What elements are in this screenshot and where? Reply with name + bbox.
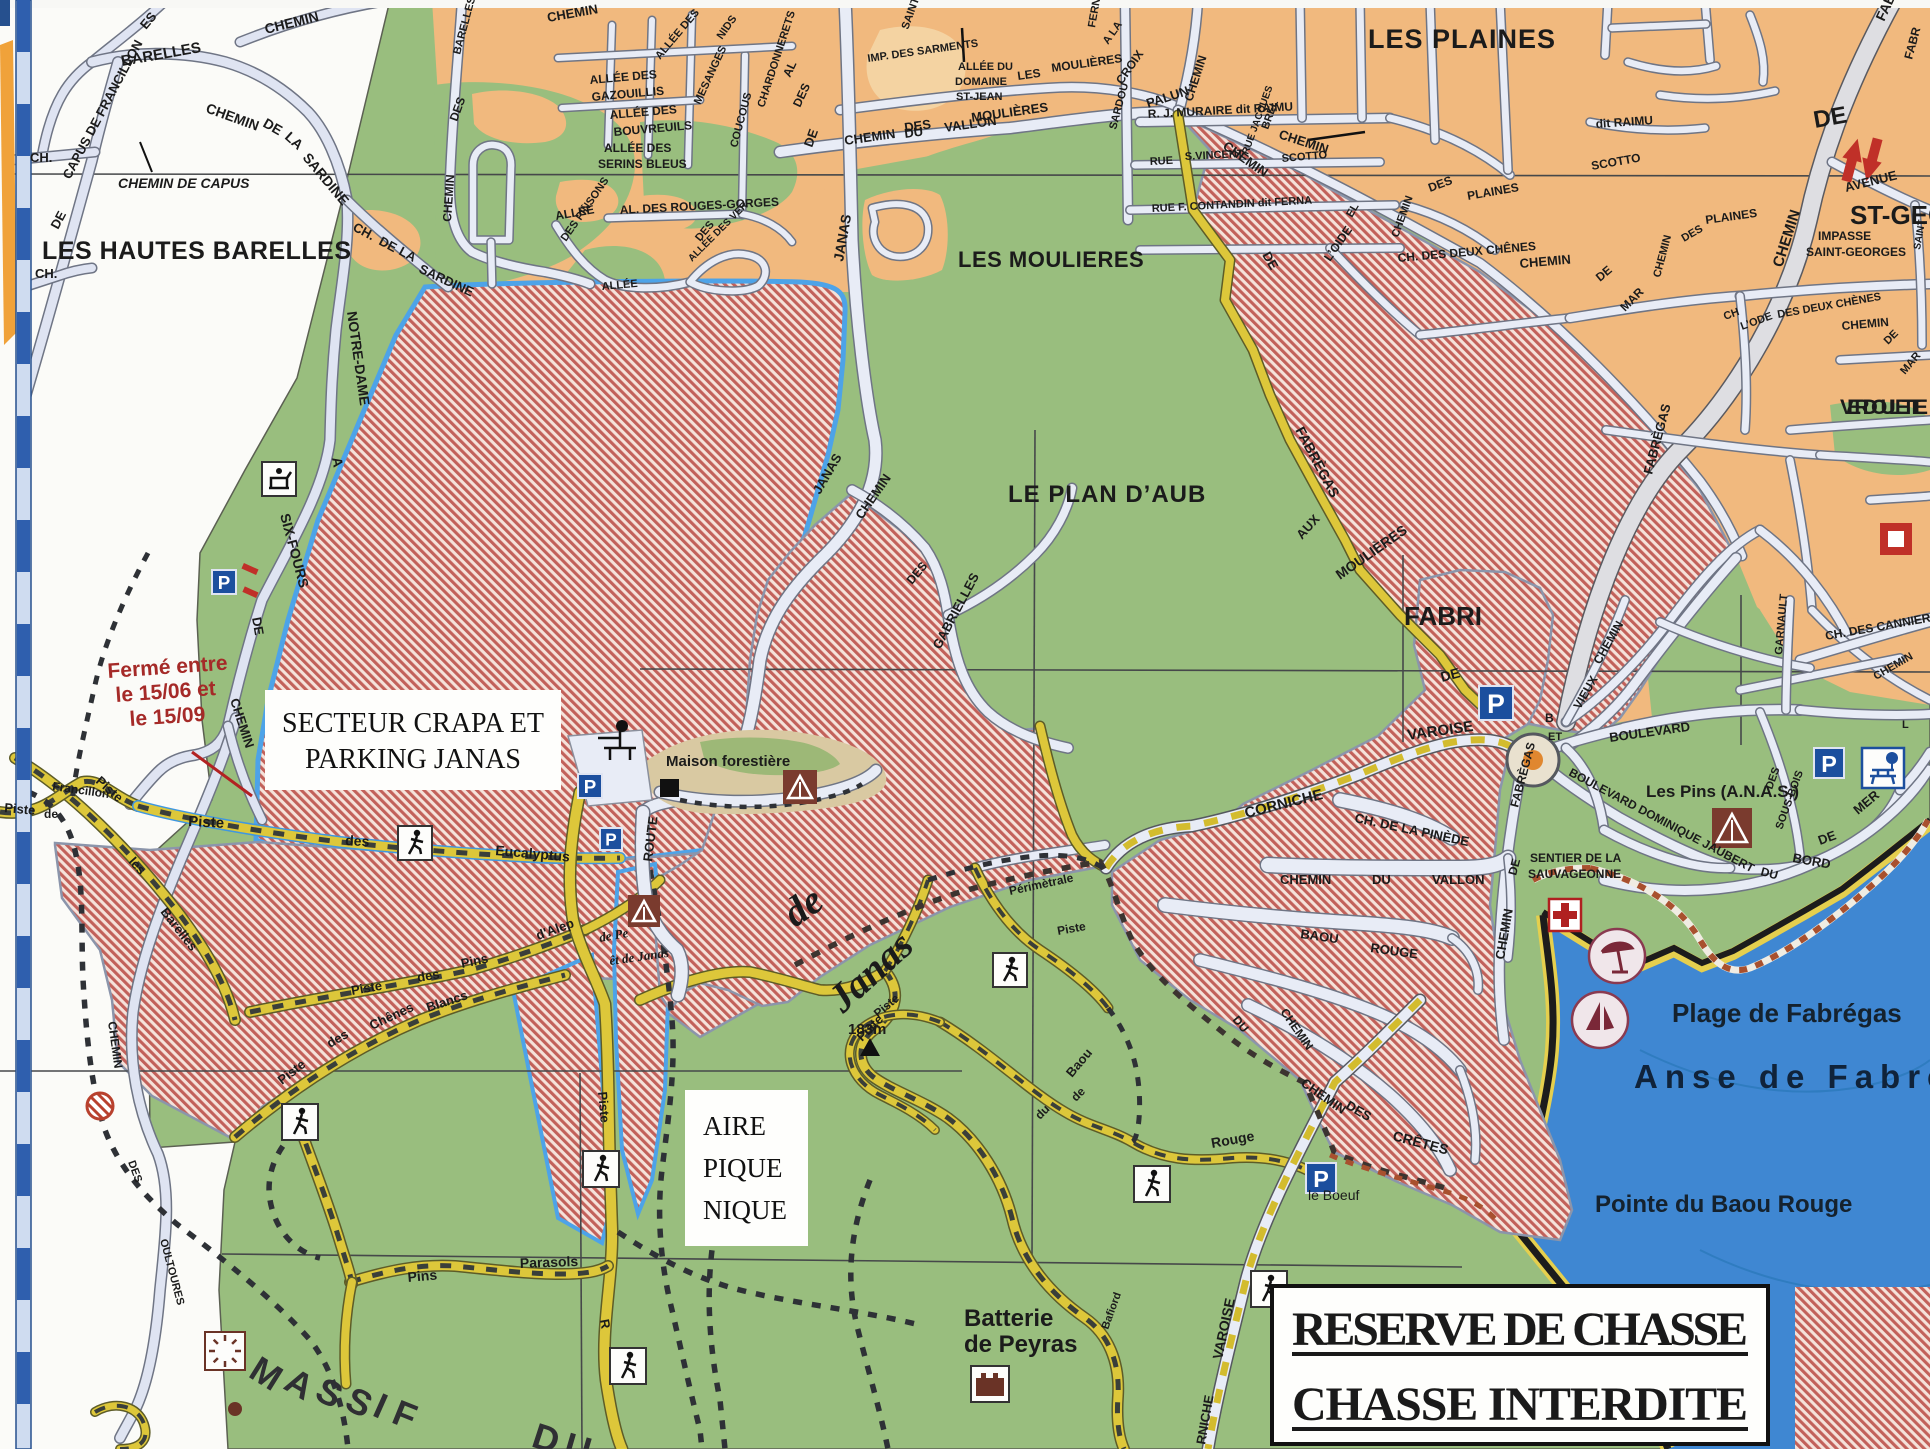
svg-text:ET: ET bbox=[1548, 731, 1562, 743]
svg-text:SAINT-GEORGES: SAINT-GEORGES bbox=[1806, 245, 1906, 259]
svg-text:ST-JEAN: ST-JEAN bbox=[956, 91, 1003, 103]
svg-text:Parasols: Parasols bbox=[520, 1253, 579, 1271]
svg-text:RESERVE DE CHASSE: RESERVE DE CHASSE bbox=[1292, 1303, 1748, 1356]
svg-text:DOMAINE: DOMAINE bbox=[955, 76, 1007, 88]
svg-text:ALLÉE DU: ALLÉE DU bbox=[958, 60, 1013, 73]
svg-text:SAUVAGEONNE: SAUVAGEONNE bbox=[1528, 867, 1621, 881]
svg-text:Maison forestière: Maison forestière bbox=[666, 753, 790, 770]
svg-text:CH.: CH. bbox=[30, 150, 52, 165]
svg-text:P: P bbox=[584, 776, 596, 797]
svg-text:DE: DE bbox=[249, 616, 267, 637]
svg-text:AIRE: AIRE bbox=[703, 1111, 766, 1141]
svg-text:NIQUE: NIQUE bbox=[703, 1195, 787, 1225]
svg-text:Pointe du Baou Rouge: Pointe du Baou Rouge bbox=[1595, 1191, 1852, 1218]
svg-text:LES HAUTES BARELLES: LES HAUTES BARELLES bbox=[42, 237, 352, 265]
svg-text:L: L bbox=[1902, 719, 1909, 731]
svg-text:CHEMIN: CHEMIN bbox=[1280, 872, 1331, 887]
svg-text:IMPASSE: IMPASSE bbox=[1818, 229, 1871, 243]
svg-text:LES PLAINES: LES PLAINES bbox=[1368, 24, 1556, 54]
svg-text:P: P bbox=[605, 830, 616, 850]
svg-text:LES MOULIERES: LES MOULIERES bbox=[958, 247, 1144, 272]
svg-text:Plage de Fabrégas: Plage de Fabrégas bbox=[1672, 998, 1902, 1028]
svg-text:le Boeuf: le Boeuf bbox=[1308, 1187, 1359, 1203]
svg-text:CHASSE INTERDITE: CHASSE INTERDITE bbox=[1292, 1378, 1748, 1431]
svg-text:de: de bbox=[44, 807, 58, 821]
svg-text:FABRI: FABRI bbox=[1404, 601, 1482, 631]
svg-text:CH.: CH. bbox=[35, 266, 57, 281]
svg-text:ALLÉE DES: ALLÉE DES bbox=[604, 140, 671, 155]
svg-text:de Peyras: de Peyras bbox=[964, 1331, 1077, 1358]
svg-text:Piste: Piste bbox=[4, 800, 36, 818]
svg-text:SERINS BLEUS: SERINS BLEUS bbox=[598, 157, 687, 171]
svg-text:PIQUE: PIQUE bbox=[703, 1153, 783, 1183]
svg-text:Pins: Pins bbox=[407, 1266, 438, 1285]
svg-text:CHEMIN DE CAPUS: CHEMIN DE CAPUS bbox=[118, 175, 250, 191]
svg-text:PARKING JANAS: PARKING JANAS bbox=[305, 744, 521, 775]
svg-text:RUE: RUE bbox=[1150, 155, 1174, 168]
svg-text:DE: DE bbox=[1811, 102, 1849, 134]
svg-text:SENTIER DE LA: SENTIER DE LA bbox=[1530, 851, 1622, 865]
svg-text:P: P bbox=[1487, 689, 1505, 719]
svg-text:SECTEUR CRAPA ET: SECTEUR CRAPA ET bbox=[282, 708, 544, 739]
svg-text:DU: DU bbox=[903, 124, 924, 141]
svg-text:VERDOULETTE: VERDOULETTE bbox=[1840, 396, 1928, 419]
svg-text:des: des bbox=[345, 832, 370, 849]
svg-text:Batterie: Batterie bbox=[964, 1305, 1053, 1332]
svg-text:DU: DU bbox=[1372, 872, 1391, 887]
svg-text:P: P bbox=[1821, 751, 1837, 777]
svg-text:LE PLAN D’AUB: LE PLAN D’AUB bbox=[1008, 481, 1206, 508]
svg-text:Piste: Piste bbox=[188, 813, 225, 832]
svg-text:B: B bbox=[1545, 711, 1554, 725]
svg-text:P: P bbox=[218, 572, 230, 593]
svg-text:Piste: Piste bbox=[595, 1091, 613, 1123]
svg-text:Anse de Fabrég: Anse de Fabrég bbox=[1634, 1058, 1930, 1095]
svg-text:VALLON: VALLON bbox=[1432, 872, 1484, 887]
